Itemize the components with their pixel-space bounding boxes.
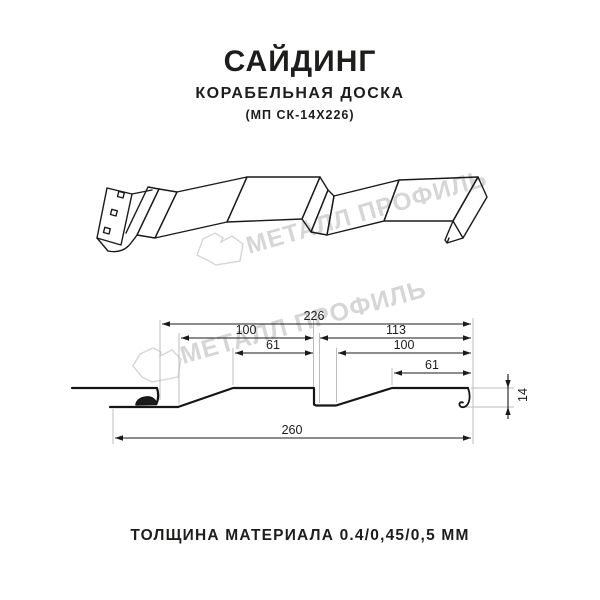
watermark-upper: МЕТАЛЛ ПРОФИЛЬ [197,165,490,265]
nail-hole [104,227,111,234]
dim-left-panel-width: 100 [236,323,257,337]
dim-overall-width: 260 [282,423,303,437]
dim-right-panel-width: 100 [394,338,415,352]
dim-profile-height: 14 [516,388,530,402]
dim-right-top-flat: 61 [425,358,439,372]
watermark-text: МЕТАЛЛ ПРОФИЛЬ [243,165,490,260]
panel-profile-line [110,388,468,407]
dim-left-top-flat: 61 [266,338,280,352]
nail-strip [97,188,132,245]
brand-logo-icon [197,233,243,265]
left-lock-curl [136,397,157,405]
product-diagram-page: САЙДИНГ КОРАБЕЛЬНАЯ ДОСКА (МП СК-14Х226)… [0,0,600,600]
technical-drawing: МЕТАЛЛ ПРОФИЛЬ МЕТАЛЛ ПРОФИЛЬ [0,0,600,600]
dim-right-span: 113 [386,323,406,337]
dim-module-width: 226 [304,309,325,323]
thickness-note: ТОЛЩИНА МАТЕРИАЛА 0.4/0,45/0,5 ММ [0,527,600,545]
brand-logo-icon [133,348,181,382]
extension-lines [113,318,514,444]
right-lock-curl [459,388,469,407]
profile-cross-section [72,388,470,407]
right-hem-fold [445,221,463,243]
dimension-lines [115,324,508,438]
nail-hole [118,191,125,198]
left-lock-fold [97,187,159,252]
nail-hole [111,209,118,216]
